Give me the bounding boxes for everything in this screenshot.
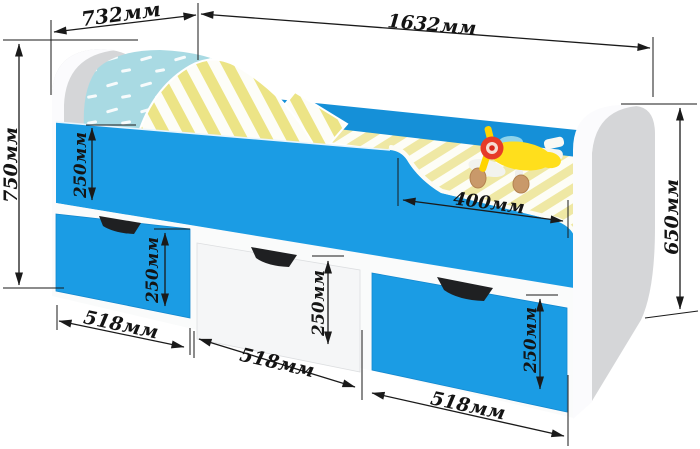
dim-label-drawer-left-height: 250мм <box>143 237 162 304</box>
airplane-wheel <box>513 175 529 193</box>
dim-label-footboard-height: 650мм <box>661 179 683 255</box>
dim-label-left-height: 750мм <box>0 127 22 203</box>
dim-label-rail-height: 250мм <box>71 132 90 199</box>
bed-diagram-svg: 732мм 1632мм 750мм 250мм 250мм 250мм 250… <box>0 0 700 449</box>
dim-label-drawer-right-height: 250мм <box>521 307 540 374</box>
bed-dimension-diagram: 732мм 1632мм 750мм 250мм 250мм 250мм 250… <box>0 0 700 449</box>
dim-label-drawer-middle-height: 250мм <box>309 270 328 337</box>
